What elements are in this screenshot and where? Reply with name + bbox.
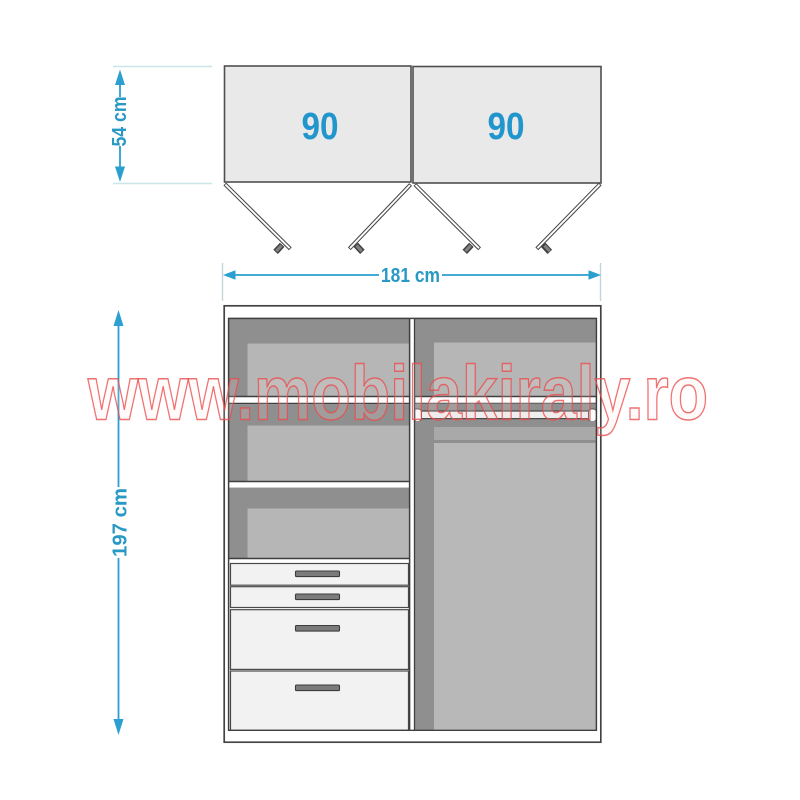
- svg-text:54 cm: 54 cm: [109, 97, 131, 147]
- svg-text:197 cm: 197 cm: [110, 488, 132, 557]
- svg-text:90: 90: [302, 106, 339, 148]
- svg-text:www.mobilakiraly.ro: www.mobilakiraly.ro: [87, 351, 708, 437]
- svg-text:181 cm: 181 cm: [381, 265, 440, 287]
- svg-text:90: 90: [488, 106, 525, 148]
